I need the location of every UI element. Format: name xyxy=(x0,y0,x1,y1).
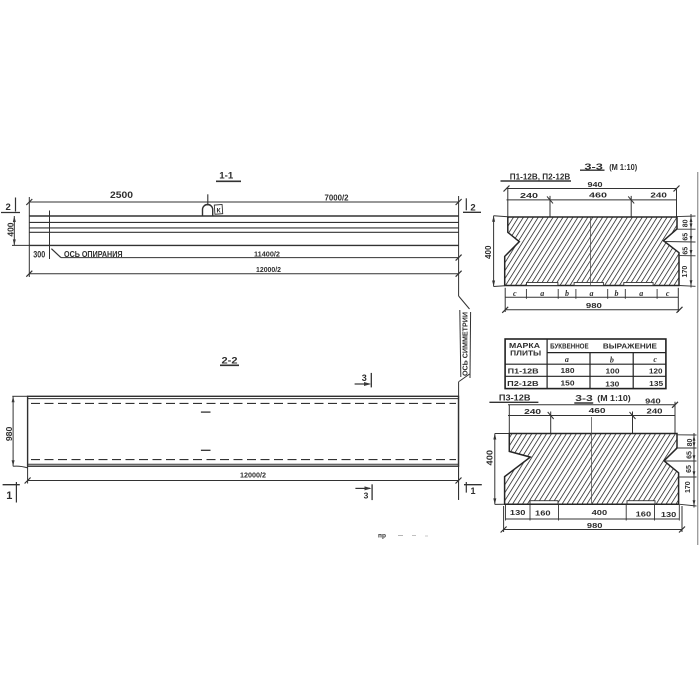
svg-text:240: 240 xyxy=(647,407,663,416)
svg-text:2-2: 2-2 xyxy=(222,355,238,366)
svg-text:100: 100 xyxy=(606,367,620,376)
svg-text:980: 980 xyxy=(587,521,603,530)
svg-text:120: 120 xyxy=(649,367,663,376)
svg-text:940: 940 xyxy=(645,396,661,405)
svg-text:240: 240 xyxy=(650,190,667,199)
svg-text:980: 980 xyxy=(4,426,14,441)
svg-text:130: 130 xyxy=(510,508,526,517)
svg-text:11400/2: 11400/2 xyxy=(254,250,280,259)
svg-text:940: 940 xyxy=(588,180,603,189)
svg-text:П1-12В: П1-12В xyxy=(508,367,540,376)
svg-text:12000/2: 12000/2 xyxy=(256,265,281,274)
svg-text:400: 400 xyxy=(484,450,494,466)
svg-text:130: 130 xyxy=(661,510,677,519)
svg-text:130: 130 xyxy=(605,379,619,388)
svg-text:3: 3 xyxy=(362,373,367,383)
svg-text:c: c xyxy=(653,355,657,364)
svg-text:160: 160 xyxy=(636,509,652,518)
svg-text:160: 160 xyxy=(535,508,551,517)
svg-text:240: 240 xyxy=(524,407,541,416)
svg-text:a: a xyxy=(639,289,643,298)
svg-text:3-3: 3-3 xyxy=(584,162,603,172)
svg-text:240: 240 xyxy=(520,191,538,200)
svg-text:80: 80 xyxy=(687,439,694,447)
svg-text:П1-12В, П2-12В: П1-12В, П2-12В xyxy=(510,172,571,181)
svg-text:65: 65 xyxy=(683,247,690,255)
svg-text:170: 170 xyxy=(685,481,692,493)
svg-text:ОСЬ СИММЕТРИИ: ОСЬ СИММЕТРИИ xyxy=(461,312,470,376)
svg-text:460: 460 xyxy=(589,406,606,415)
svg-text:пр: пр xyxy=(378,533,386,540)
svg-text:3-3: 3-3 xyxy=(575,393,593,403)
svg-text:400: 400 xyxy=(592,508,608,517)
svg-text:12000/2: 12000/2 xyxy=(240,471,266,480)
svg-text:b: b xyxy=(565,289,569,298)
svg-text:1: 1 xyxy=(6,490,12,502)
svg-text:460: 460 xyxy=(589,190,607,199)
svg-text:1: 1 xyxy=(470,486,475,496)
svg-text:65: 65 xyxy=(687,451,694,459)
svg-text:a: a xyxy=(540,289,544,298)
svg-text:(М 1:10): (М 1:10) xyxy=(609,162,637,172)
svg-text:65: 65 xyxy=(686,465,693,473)
svg-text:7000/2: 7000/2 xyxy=(325,193,350,202)
svg-text:80: 80 xyxy=(683,219,690,227)
svg-text:b: b xyxy=(615,289,619,298)
svg-text:2500: 2500 xyxy=(110,190,133,200)
svg-text:1-1: 1-1 xyxy=(219,171,234,182)
svg-text:П2-12В: П2-12В xyxy=(507,379,539,388)
svg-text:b: b xyxy=(610,356,614,365)
svg-text:980: 980 xyxy=(586,301,602,310)
svg-text:400: 400 xyxy=(6,222,16,236)
svg-text:150: 150 xyxy=(561,378,575,387)
svg-text:К: К xyxy=(217,207,222,214)
svg-text:ПЛИТЫ: ПЛИТЫ xyxy=(510,349,541,358)
svg-text:2: 2 xyxy=(6,202,11,213)
svg-text:a: a xyxy=(565,355,569,364)
svg-text:3: 3 xyxy=(364,490,369,500)
svg-text:400: 400 xyxy=(483,245,493,259)
svg-text:(М 1:10): (М 1:10) xyxy=(597,393,631,403)
svg-text:c: c xyxy=(666,289,670,298)
svg-text:a: a xyxy=(590,289,594,298)
svg-text:2: 2 xyxy=(470,202,475,213)
svg-text:170: 170 xyxy=(682,266,689,278)
svg-text:ВЫРАЖЕНИЕ: ВЫРАЖЕНИЕ xyxy=(603,341,657,350)
svg-text:ОСЬ ОПИРАНИЯ: ОСЬ ОПИРАНИЯ xyxy=(64,250,123,259)
svg-text:300: 300 xyxy=(33,249,45,259)
svg-text:БУКВЕННОЕ: БУКВЕННОЕ xyxy=(550,341,589,350)
svg-text:c: c xyxy=(513,289,517,298)
svg-text:П3-12В: П3-12В xyxy=(499,394,531,403)
svg-text:180: 180 xyxy=(561,366,575,375)
svg-text:135: 135 xyxy=(649,379,663,388)
svg-text:65: 65 xyxy=(683,233,690,241)
